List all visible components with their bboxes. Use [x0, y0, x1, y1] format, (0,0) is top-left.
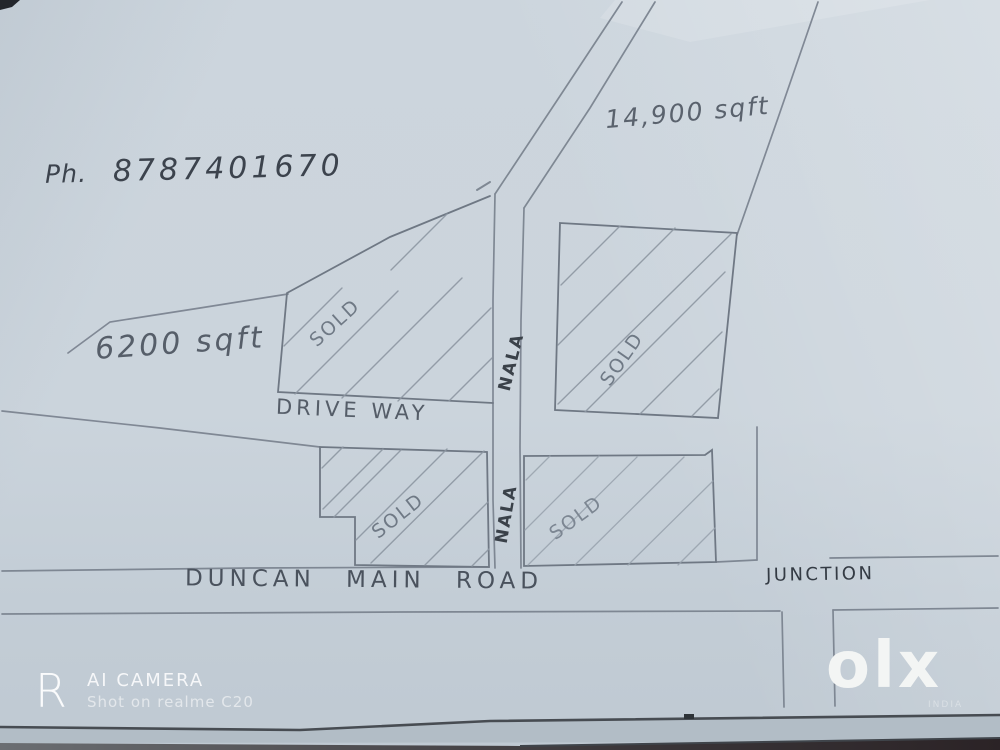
junction-label: JUNCTION	[766, 563, 875, 586]
olx-region-label: INDIA	[928, 700, 963, 710]
plot-lower-right-outline	[524, 450, 716, 566]
junction-road-left-lower	[782, 612, 784, 707]
paper-sheen	[600, 0, 930, 42]
photo-of-hand-drawn-plot-map: Ph.8787401670 14,900 sqft 6200 sqft DRIV…	[0, 0, 1000, 750]
camera-watermark: R AI CAMERA Shot on realme C20	[35, 668, 254, 714]
watermark-title: AI CAMERA	[87, 670, 254, 693]
apex-tick	[477, 182, 490, 190]
olx-logo: olx	[826, 634, 942, 698]
nala-corridor-left-diagonal	[495, 2, 622, 194]
driveway-lower-edge	[2, 411, 320, 447]
phone-number: 8787401670	[112, 148, 344, 189]
hatching-lines-light	[525, 456, 715, 565]
watermark-subtitle: Shot on realme C20	[87, 693, 254, 712]
edge-mark	[684, 714, 694, 719]
realme-logo-icon: R	[35, 668, 67, 714]
main-road-label: DUNCAN MAIN ROAD	[185, 565, 543, 594]
main-road-top-right	[830, 556, 998, 558]
main-road-bottom-left	[2, 611, 780, 614]
main-road-bottom-right	[833, 608, 998, 610]
photo-corner-notch	[0, 0, 20, 10]
plot-upper-left-outline	[278, 196, 493, 403]
phone-label: Ph.	[45, 159, 88, 189]
nala-left-edge	[493, 194, 495, 568]
main-road-top-mid	[716, 560, 757, 562]
